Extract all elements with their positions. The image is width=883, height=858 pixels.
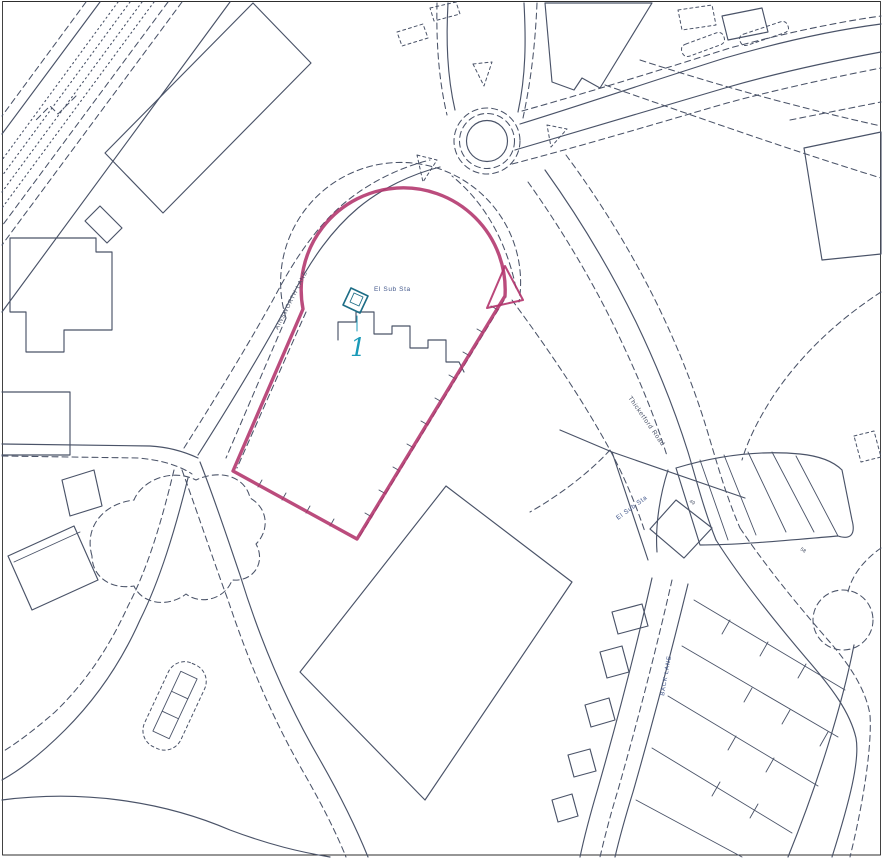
roundabout-island xyxy=(467,121,508,162)
house-outline xyxy=(600,646,629,678)
railway-corridor xyxy=(2,2,182,245)
railway-track xyxy=(2,2,130,176)
roundabout-outer-dashed xyxy=(454,108,520,174)
railway-track xyxy=(2,2,154,208)
plot-line xyxy=(748,452,786,532)
plot-number-small: 58 xyxy=(799,547,807,555)
site-boundary xyxy=(233,188,523,539)
substation-east xyxy=(560,430,745,560)
railway-edge xyxy=(2,2,100,134)
building-outline xyxy=(2,392,70,455)
traffic-island-dashed xyxy=(430,2,460,21)
road-name-label: AINSWORTH LANE xyxy=(274,270,309,331)
boundary-line xyxy=(560,430,648,560)
building-south xyxy=(300,300,645,800)
plot-number-small: 49 xyxy=(688,499,696,507)
terrace-strip xyxy=(636,800,742,857)
substation-site xyxy=(343,288,368,313)
plot-line xyxy=(700,460,728,540)
lane-boundary-dashed xyxy=(226,318,286,458)
road-name-label: Thicketford Road xyxy=(626,395,666,447)
parcel-dashed xyxy=(678,5,716,30)
road-boundary-dashed xyxy=(2,456,192,474)
parcel-dashed xyxy=(790,102,881,120)
substation-label: El Sub Sta xyxy=(374,286,411,293)
traffic-island-triangle xyxy=(473,62,492,86)
cul-de-sac-dashed xyxy=(813,590,873,650)
parcel-dashed xyxy=(854,431,881,462)
substation-inner xyxy=(350,293,363,306)
road-boundary-dashed xyxy=(522,16,881,111)
parcel-dashed xyxy=(640,60,881,126)
railway-track xyxy=(2,2,118,160)
roundabout xyxy=(397,2,567,182)
substation-label: El Sub Sta xyxy=(615,494,649,521)
parcel-dashed xyxy=(530,450,610,512)
traffic-island-dashed xyxy=(397,24,428,46)
lane-edge xyxy=(615,584,688,857)
parcel-dashed xyxy=(512,300,645,532)
traffic-island-dashed xyxy=(682,33,725,57)
plot-line xyxy=(796,456,838,536)
railway-track xyxy=(2,2,142,192)
road-edge xyxy=(2,796,330,857)
map-canvas: 1 El Sub Sta El Sub Sta AINSWORTH LANE T… xyxy=(0,0,883,858)
site-interior xyxy=(237,297,506,536)
track-outline-dashed xyxy=(137,656,212,756)
plot-line xyxy=(772,452,814,532)
base-map-ink xyxy=(2,2,881,857)
road-boundary-dashed xyxy=(182,470,346,857)
road-boundary-dashed xyxy=(740,528,870,857)
house-outline xyxy=(552,794,578,822)
lane-boundary-dashed xyxy=(452,176,516,288)
building-outline xyxy=(722,8,768,40)
road-north xyxy=(437,3,537,118)
house-outline xyxy=(585,698,615,727)
track-feature xyxy=(137,656,212,756)
site-plan-map: 1 El Sub Sta El Sub Sta AINSWORTH LANE T… xyxy=(0,0,883,858)
road-edge xyxy=(716,540,857,857)
road-edge xyxy=(518,3,525,112)
building-outline xyxy=(105,3,311,213)
boundary-line xyxy=(2,2,230,312)
lane-boundary-dashed xyxy=(184,160,430,448)
terraced-housing xyxy=(552,548,881,857)
map-labels: 1 El Sub Sta El Sub Sta AINSWORTH LANE T… xyxy=(274,270,807,696)
road-edge xyxy=(447,3,455,110)
road-edge xyxy=(2,444,198,458)
building-outline xyxy=(804,132,881,260)
site-boundary-outline xyxy=(233,188,505,539)
building-inner-line xyxy=(14,532,80,562)
track-divider xyxy=(162,691,188,719)
map-frame xyxy=(3,2,881,856)
track-inner xyxy=(153,671,197,738)
frame-border xyxy=(3,2,881,856)
scrub-outline-dashed xyxy=(90,475,265,603)
building-outline xyxy=(300,486,572,800)
plot-number-label: 1 xyxy=(350,333,366,362)
garden-plot-fan xyxy=(657,452,854,552)
road-name-label: BACK LANE xyxy=(660,655,673,696)
roundabout-mid-dashed xyxy=(460,114,515,169)
road-boundary-dashed xyxy=(848,548,881,592)
map-background xyxy=(0,0,883,858)
building-outline xyxy=(62,470,102,516)
road-edge xyxy=(545,170,716,540)
lane-edge xyxy=(580,578,652,857)
road-edge xyxy=(200,462,368,857)
substation-building xyxy=(343,288,368,313)
road-boundary-dashed xyxy=(2,470,174,752)
terrace-strip xyxy=(668,696,818,786)
cul-de-sac-dashed xyxy=(281,162,521,318)
road-boundary-dashed xyxy=(512,68,881,164)
terrace-strip xyxy=(682,646,838,737)
building-outline xyxy=(10,238,112,352)
road-boundary-dashed xyxy=(566,155,740,528)
terrace-divider xyxy=(712,620,828,818)
house-outline xyxy=(568,749,596,777)
bottom-left-area xyxy=(2,462,368,857)
parcel-dashed xyxy=(237,312,306,468)
traffic-island-dashed xyxy=(740,22,789,46)
building-outline xyxy=(545,3,652,90)
lane-centerline-dashed xyxy=(600,580,672,857)
buildings-top-right xyxy=(545,3,881,260)
lane-edge xyxy=(198,167,440,455)
building-outline xyxy=(8,526,98,610)
buildings-top-left xyxy=(2,2,311,455)
road-east xyxy=(512,16,881,164)
plot-line xyxy=(724,455,756,535)
